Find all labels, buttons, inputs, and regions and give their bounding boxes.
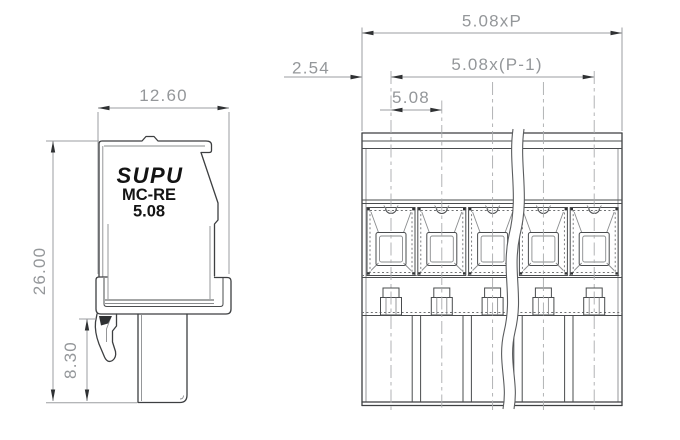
dim-front-pole-span: 5.08x(P-1) xyxy=(391,55,594,79)
pole-centerlines xyxy=(391,71,594,410)
dim-side-lower-height: 8.30 xyxy=(61,319,96,401)
dim-side-width-text: 12.60 xyxy=(139,86,188,105)
side-view-leg xyxy=(138,314,187,403)
arrowhead xyxy=(391,75,403,79)
arrowhead xyxy=(611,31,623,35)
dim-front-pitch: 5.08 xyxy=(380,88,442,112)
arrowhead xyxy=(362,31,374,35)
dimensions: 12.60 26.00 8.30 5.08xP 5.08x(P-1) xyxy=(30,12,622,411)
dim-front-total-width-text: 5.08xP xyxy=(462,12,522,31)
dim-side-lower-height-text: 8.30 xyxy=(61,341,80,379)
side-view-latch-hook xyxy=(95,314,116,361)
break-line xyxy=(502,129,525,409)
logo-brand-text: SUPU xyxy=(116,163,183,188)
technical-drawing: SUPU MC-RE 5.08 xyxy=(0,0,680,440)
arrowhead xyxy=(85,390,89,402)
dim-front-edge-to-center-text: 2.54 xyxy=(292,59,330,78)
dim-side-height-text: 26.00 xyxy=(30,247,49,296)
drawing-canvas: SUPU MC-RE 5.08 xyxy=(0,0,680,440)
side-view: SUPU MC-RE 5.08 xyxy=(95,137,231,403)
dim-front-pitch-text: 5.08 xyxy=(392,88,430,107)
arrowhead xyxy=(85,319,89,331)
arrowhead xyxy=(218,106,230,110)
logo-model-text: MC-RE xyxy=(122,186,176,204)
dim-front-pole-span-text: 5.08x(P-1) xyxy=(451,55,542,74)
side-view-clamp xyxy=(96,277,231,314)
arrowhead xyxy=(98,106,110,110)
side-view-logo: SUPU MC-RE 5.08 xyxy=(116,163,183,221)
arrowhead xyxy=(430,108,442,112)
front-view xyxy=(362,129,622,409)
dim-front-edge-to-center: 2.54 xyxy=(284,59,362,80)
front-housing xyxy=(362,133,622,406)
arrowhead xyxy=(391,108,403,112)
arrowhead xyxy=(51,141,55,153)
arrowhead xyxy=(351,75,363,80)
logo-pitch-text: 5.08 xyxy=(133,203,165,221)
arrowhead xyxy=(583,75,595,79)
arrowhead xyxy=(51,390,55,402)
